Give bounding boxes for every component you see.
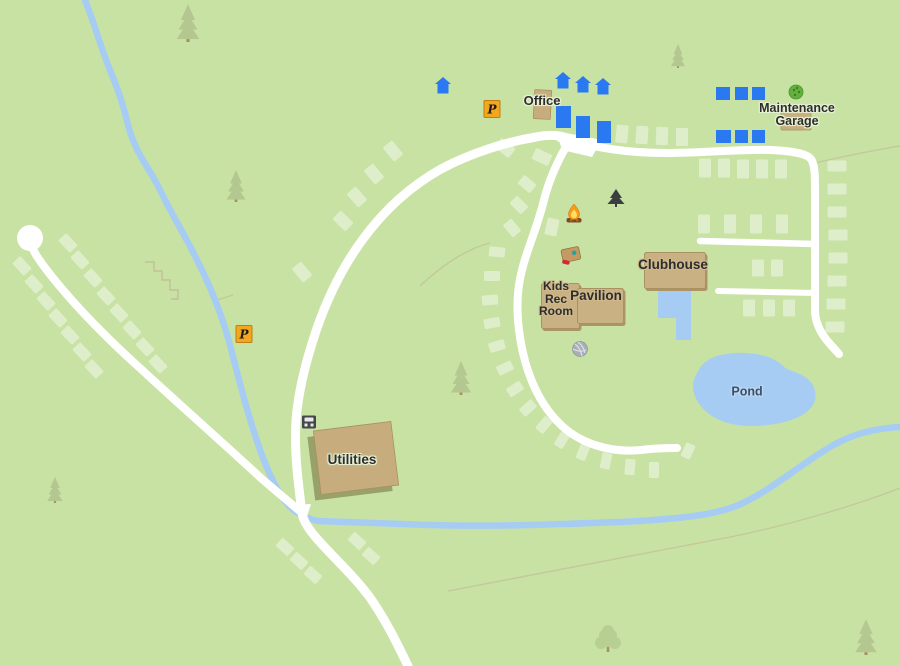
campsite-pad xyxy=(649,462,659,478)
road-stub-upper xyxy=(700,241,815,244)
bush-icon[interactable] xyxy=(789,85,803,99)
campsite-pad xyxy=(756,160,768,179)
campsite-pad xyxy=(828,207,847,218)
parking-icon[interactable]: P xyxy=(484,101,500,118)
campsite-pad xyxy=(737,160,749,179)
svg-text:P: P xyxy=(238,328,249,342)
campsite-pad xyxy=(827,299,846,310)
electric-meter-icon[interactable] xyxy=(302,416,316,429)
campsite-pad xyxy=(698,215,710,234)
utilities-building[interactable] xyxy=(313,421,398,494)
blue-building xyxy=(716,87,730,100)
campsite-pad xyxy=(615,124,629,143)
blue-building xyxy=(735,130,748,143)
campsite-pad xyxy=(676,128,688,146)
parking-icon[interactable]: P xyxy=(236,326,252,343)
blue-building xyxy=(752,87,765,100)
blue-building xyxy=(752,130,765,143)
campsite-pad xyxy=(624,459,635,476)
svg-text:P: P xyxy=(486,103,497,117)
campsite-pad xyxy=(776,215,788,234)
campsite-pad xyxy=(718,159,730,178)
restrooms-icon[interactable] xyxy=(673,274,686,287)
campsite-pad xyxy=(828,161,847,172)
games-icon[interactable] xyxy=(657,274,670,287)
office-building[interactable] xyxy=(533,90,551,120)
blue-building xyxy=(716,130,731,143)
campsite-pad xyxy=(829,253,848,264)
blue-building xyxy=(556,106,571,128)
campsite-pad xyxy=(828,276,847,287)
campsite-pad xyxy=(829,230,848,241)
campsite-pad xyxy=(828,184,847,195)
campsite-pad xyxy=(489,246,506,257)
campsite-pad xyxy=(826,322,845,333)
campsite-pad xyxy=(775,160,787,179)
campsite-pad xyxy=(763,300,775,317)
campsite-pad xyxy=(724,215,736,234)
campsite-pad xyxy=(750,215,762,234)
campsite-pad xyxy=(699,159,711,178)
map-canvas: PP xyxy=(0,0,900,666)
campsite-pad xyxy=(656,127,669,145)
campsite-pad xyxy=(484,271,500,281)
campsite-pad xyxy=(771,260,783,277)
campsite-pad xyxy=(635,126,648,145)
maintenance-building[interactable] xyxy=(781,106,811,130)
blue-building xyxy=(735,87,748,100)
campsite-pad xyxy=(752,260,764,277)
campsite-pad xyxy=(783,300,795,317)
blue-building xyxy=(576,116,590,138)
road-stub-lower xyxy=(718,291,815,293)
campsite-pad xyxy=(482,294,499,305)
campsite-pad xyxy=(743,300,755,317)
blue-building xyxy=(597,121,611,143)
campground-map[interactable]: PP OfficeMaintenanceGarageClubhouseKidsR… xyxy=(0,0,900,666)
ball-icon[interactable] xyxy=(573,342,588,357)
